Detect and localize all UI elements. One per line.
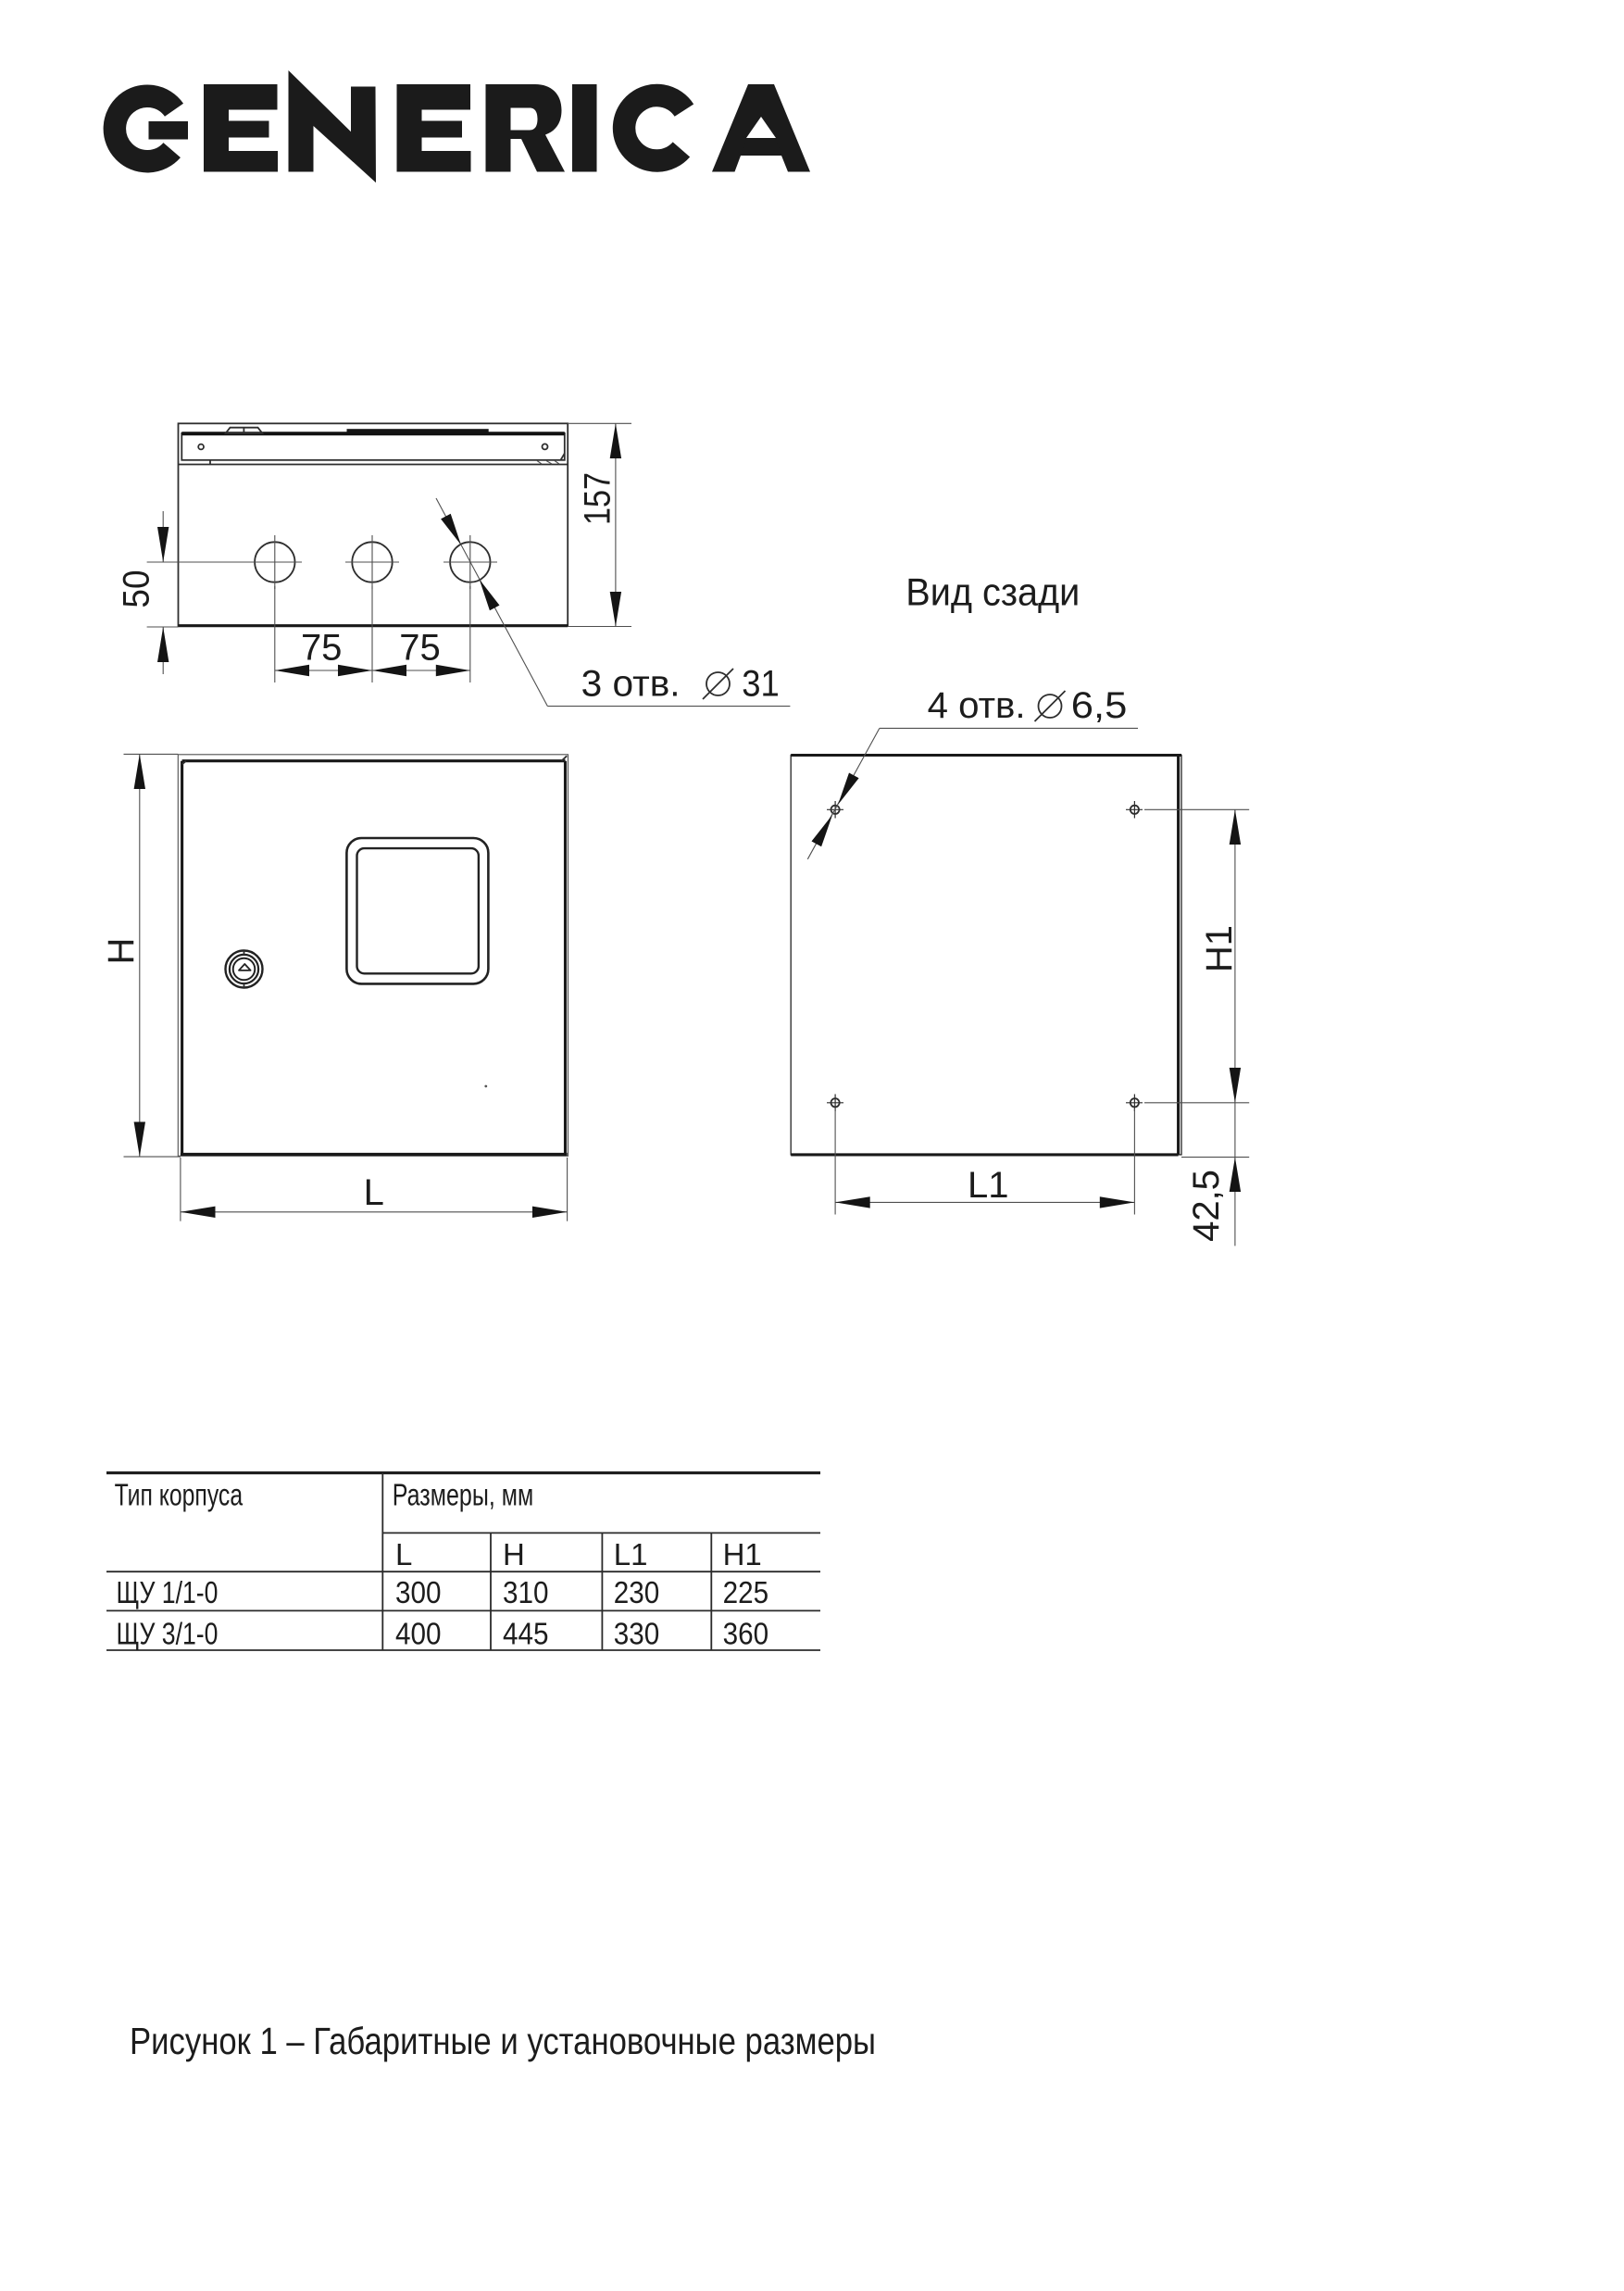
svg-text:H1: H1: [723, 1537, 762, 1571]
svg-text:L: L: [395, 1537, 412, 1571]
svg-text:ЩУ 1/1-0: ЩУ 1/1-0: [117, 1575, 219, 1609]
svg-text:400: 400: [395, 1617, 442, 1651]
svg-text:3 отв.: 3 отв.: [581, 664, 681, 705]
svg-text:157: 157: [578, 472, 618, 525]
svg-text:6,5: 6,5: [1071, 685, 1128, 726]
svg-text:Вид сзади: Вид сзади: [906, 570, 1080, 613]
svg-text:H1: H1: [1199, 925, 1240, 972]
svg-text:H: H: [503, 1537, 525, 1571]
svg-text:Тип корпуса: Тип корпуса: [115, 1478, 244, 1512]
svg-text:L1: L1: [968, 1165, 1009, 1206]
svg-text:ЩУ 3/1-0: ЩУ 3/1-0: [117, 1617, 219, 1651]
svg-text:360: 360: [723, 1617, 769, 1651]
svg-text:31: 31: [742, 664, 780, 705]
svg-text:75: 75: [399, 627, 441, 668]
svg-text:300: 300: [395, 1575, 442, 1609]
svg-text:H: H: [101, 938, 142, 965]
svg-text:L: L: [364, 1172, 384, 1213]
svg-text:4 отв.: 4 отв.: [928, 685, 1026, 726]
svg-text:445: 445: [503, 1617, 549, 1651]
svg-text:310: 310: [503, 1575, 549, 1609]
svg-text:L1: L1: [614, 1537, 648, 1571]
svg-text:Размеры, мм: Размеры, мм: [393, 1478, 533, 1512]
svg-text:Рисунок 1 – Габаритные и устан: Рисунок 1 – Габаритные и установочные ра…: [130, 2020, 876, 2062]
svg-text:330: 330: [614, 1617, 660, 1651]
svg-text:230: 230: [614, 1575, 660, 1609]
svg-text:50: 50: [117, 570, 157, 607]
svg-text:75: 75: [301, 627, 343, 668]
svg-text:225: 225: [723, 1575, 769, 1609]
svg-text:42,5: 42,5: [1186, 1170, 1227, 1242]
